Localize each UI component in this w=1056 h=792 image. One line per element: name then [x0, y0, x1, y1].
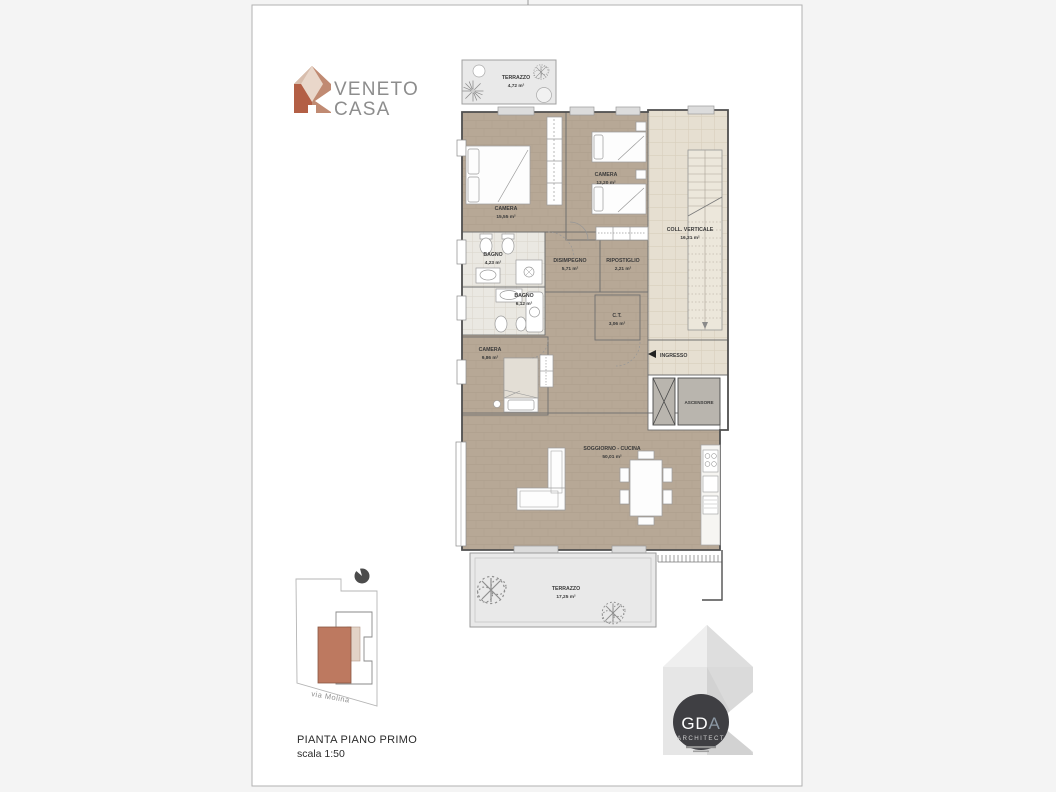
- kitchen-counter: [701, 445, 720, 545]
- room-area: 9,86 m²: [482, 355, 499, 361]
- room-area: 4,72 m²: [508, 83, 525, 89]
- gda-fineprint-line: [686, 746, 716, 748]
- room-label: C.T.: [612, 313, 622, 319]
- terrace-chair: [537, 88, 552, 103]
- room-label: COLL. VERTICALE: [667, 227, 714, 233]
- brand-name-line1: VENETO: [334, 79, 419, 100]
- room-area: 13,20 m²: [596, 180, 616, 186]
- room-area: 15,55 m²: [496, 214, 516, 220]
- apartment-floor-plan: ASCENSORE: [456, 60, 728, 627]
- room-area: 16,21 m²: [680, 235, 700, 241]
- highlighted-unit: [318, 627, 351, 683]
- room-label: DISIMPEGNO: [553, 258, 586, 264]
- room-area: 3,06 m²: [609, 321, 626, 327]
- room-label: BAGNO: [514, 293, 533, 299]
- room-label: CAMERA: [495, 206, 518, 212]
- wardrobe: [540, 355, 553, 387]
- wood-floor-living-zone: [462, 413, 720, 550]
- drawing-sheet-viewport: VENETO CASA: [0, 0, 1056, 792]
- room-label: BAGNO: [483, 252, 502, 258]
- gda-subtitle: ARCHITECT: [677, 735, 725, 742]
- elevator-label: ASCENSORE: [684, 400, 713, 405]
- floor-plan-drawing: VENETO CASA: [0, 0, 1056, 792]
- drawing-scale: scala 1:50: [297, 748, 345, 760]
- room-label: CAMERA: [595, 172, 618, 178]
- terrace-top: [462, 60, 556, 104]
- elevator-block: ASCENSORE: [653, 378, 720, 425]
- brand-name-line2: CASA: [334, 99, 391, 120]
- bed-double: [466, 146, 530, 204]
- room-label: CAMERA: [479, 347, 502, 353]
- room-label: SOGGIORNO - CUCINA: [583, 446, 641, 452]
- room-area: 6,12 m²: [516, 301, 533, 307]
- wardrobe: [596, 227, 648, 240]
- room-area: 4,23 m²: [485, 260, 502, 266]
- drawing-title: PIANTA PIANO PRIMO: [297, 734, 417, 746]
- room-area: 2,21 m²: [615, 266, 632, 272]
- room-label: TERRAZZO: [552, 586, 580, 592]
- room-label: TERRAZZO: [502, 75, 530, 81]
- entrance-label: INGRESSO: [660, 353, 687, 359]
- gda-initials: GDA: [681, 714, 720, 733]
- room-area: 50,01 m²: [602, 454, 622, 460]
- plant-icon: [463, 81, 484, 102]
- room-area: 5,71 m²: [562, 266, 579, 272]
- gda-fineprint-line: [693, 751, 709, 753]
- terrace-table: [473, 65, 485, 77]
- room-area: 17,25 m²: [556, 594, 576, 600]
- wardrobe: [547, 117, 562, 205]
- room-label: RIPOSTIGLIO: [606, 258, 639, 264]
